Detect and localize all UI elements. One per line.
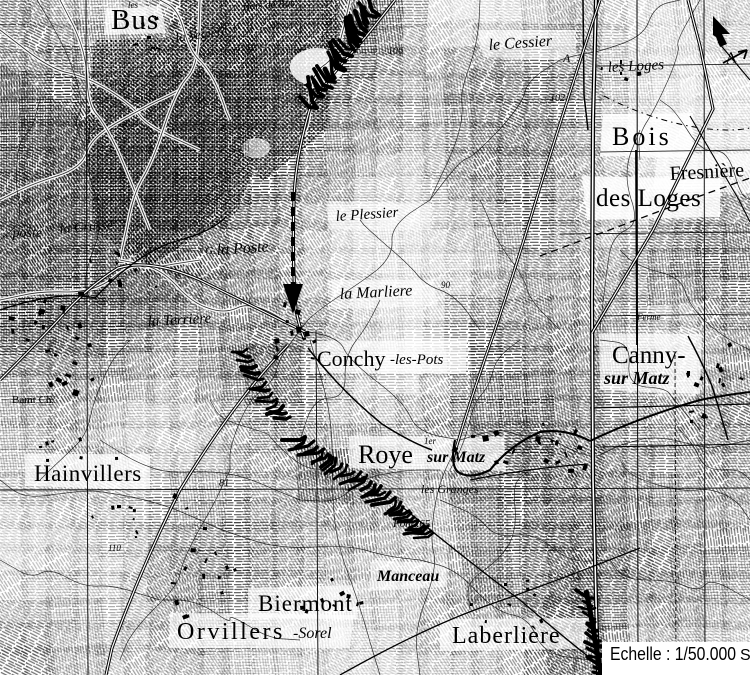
svg-text:...poste: ...poste: [2, 226, 42, 241]
svg-text:106: 106: [388, 46, 403, 57]
svg-text:102: 102: [550, 93, 565, 104]
svg-text:sur Matz: sur Matz: [603, 368, 670, 388]
svg-text:les Loges: les Loges: [607, 57, 664, 76]
svg-text:110: 110: [108, 543, 121, 553]
svg-text:1er: 1er: [424, 436, 436, 446]
svg-text:Bois: Bois: [612, 122, 672, 151]
svg-text:Orvillers: Orvillers: [177, 619, 285, 645]
svg-text:Laberlière: Laberlière: [452, 623, 561, 649]
svg-text:Conchy: Conchy: [317, 346, 385, 371]
svg-text:Roye: Roye: [358, 440, 413, 469]
svg-text:G.: G.: [205, 245, 216, 257]
svg-text:S: S: [740, 647, 750, 664]
svg-text:Bamt Ch.: Bamt Ch.: [12, 394, 54, 406]
svg-text:Hainvillers: Hainvillers: [34, 461, 142, 486]
svg-text:des Loges: des Loges: [596, 185, 701, 212]
svg-text:la Poste: la Poste: [216, 238, 269, 259]
svg-text:-Sorel: -Sorel: [293, 625, 332, 642]
svg-text:Canny-: Canny-: [612, 342, 686, 369]
svg-text:les Granges: les Granges: [421, 482, 479, 496]
svg-text:A: A: [562, 51, 571, 65]
svg-text:Echelle : 1/50.000: Echelle : 1/50.000: [610, 644, 736, 664]
svg-text:Manceau: Manceau: [376, 568, 439, 585]
svg-text:Ferme: Ferme: [636, 312, 661, 322]
svg-text:90: 90: [441, 280, 451, 290]
svg-text:-les-Pots: -les-Pots: [390, 352, 443, 368]
svg-text:sur Matz: sur Matz: [426, 449, 486, 466]
svg-text:les: les: [128, 0, 138, 10]
svg-text:Font..65: Font..65: [392, 518, 431, 530]
svg-text:81: 81: [219, 478, 229, 489]
svg-text:la Terriere: la Terriere: [147, 311, 212, 330]
svg-text:Fresnière: Fresnière: [669, 159, 745, 185]
svg-text:Biermont: Biermont: [258, 591, 353, 616]
